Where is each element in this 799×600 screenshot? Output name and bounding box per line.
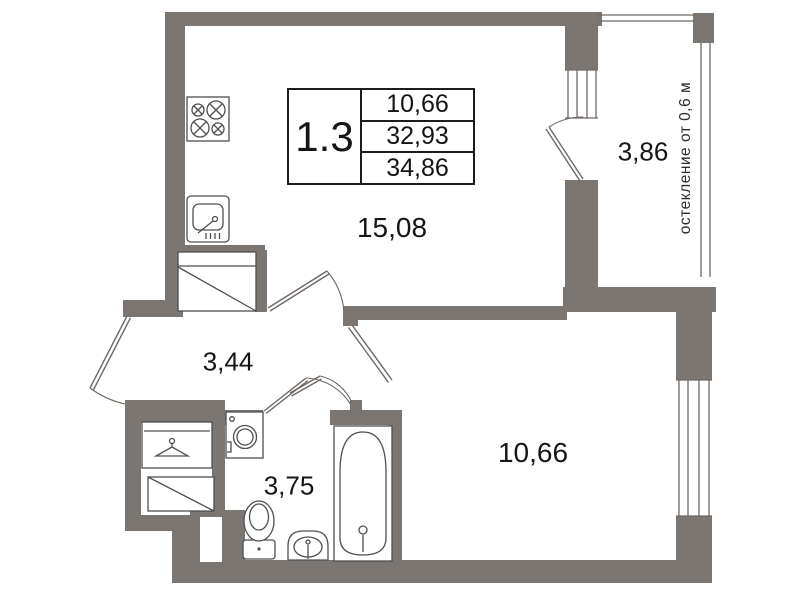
living-room-door <box>268 271 344 311</box>
living-room-area-label: 15,08 <box>357 212 427 244</box>
window-opening <box>565 70 598 118</box>
balcony-partition-top <box>565 25 598 70</box>
hall-area-label: 3,44 <box>203 347 254 378</box>
bathroom-area-label: 3,75 <box>264 471 315 502</box>
closet-bottom-vert <box>172 515 190 583</box>
shaft-right-wall <box>255 250 267 312</box>
kitchen-sink-icon <box>187 196 229 242</box>
unit-area-table: 1.3 10,66 32,93 34,86 <box>287 88 475 185</box>
hall-top-wall-block <box>123 300 183 317</box>
wardrobe-hanger-icon <box>142 422 212 468</box>
hall-angled-wall <box>349 325 393 383</box>
duct-diagonal-icon <box>148 477 214 511</box>
entry-lower-wall <box>125 403 141 531</box>
floor-plan: 1.3 10,66 32,93 34,86 15,08 3,86 3,44 3,… <box>0 0 799 600</box>
wall-niche <box>200 517 222 562</box>
stove-icon <box>187 97 229 141</box>
unit-total-area: 34,86 <box>362 153 473 183</box>
balcony-partition-bottom <box>565 180 598 295</box>
bedroom-window <box>676 380 712 516</box>
bathtub-icon <box>334 426 392 561</box>
living-bedroom-wall <box>343 306 567 320</box>
washing-machine-icon <box>226 412 263 458</box>
shaft-diagonal-icon <box>178 252 256 311</box>
doorframe-tick-a <box>343 320 358 326</box>
balcony-area-label: 3,86 <box>618 137 669 168</box>
bottom-wall <box>172 560 712 583</box>
bedroom-area-label: 10,66 <box>498 437 568 469</box>
bedroom-door <box>290 376 352 403</box>
entrance-door <box>90 316 131 404</box>
unit-number: 1.3 <box>289 90 362 183</box>
window-opening <box>676 380 712 516</box>
shaft-top-wall <box>175 245 265 252</box>
unit-living-area: 10,66 <box>362 90 473 122</box>
balcony-window <box>565 70 598 118</box>
glazing-note: остекление от 0,6 м <box>677 82 695 234</box>
bedroom-right-wall-top <box>676 312 712 380</box>
washbasin-icon <box>288 531 328 560</box>
unit-area: 32,93 <box>362 122 473 154</box>
bathroom-top-wall-right <box>330 410 402 425</box>
balcony-corner-pillar-top <box>693 13 714 43</box>
top-wall <box>165 12 602 26</box>
toilet-icon <box>243 501 275 559</box>
balcony-door <box>546 117 583 181</box>
